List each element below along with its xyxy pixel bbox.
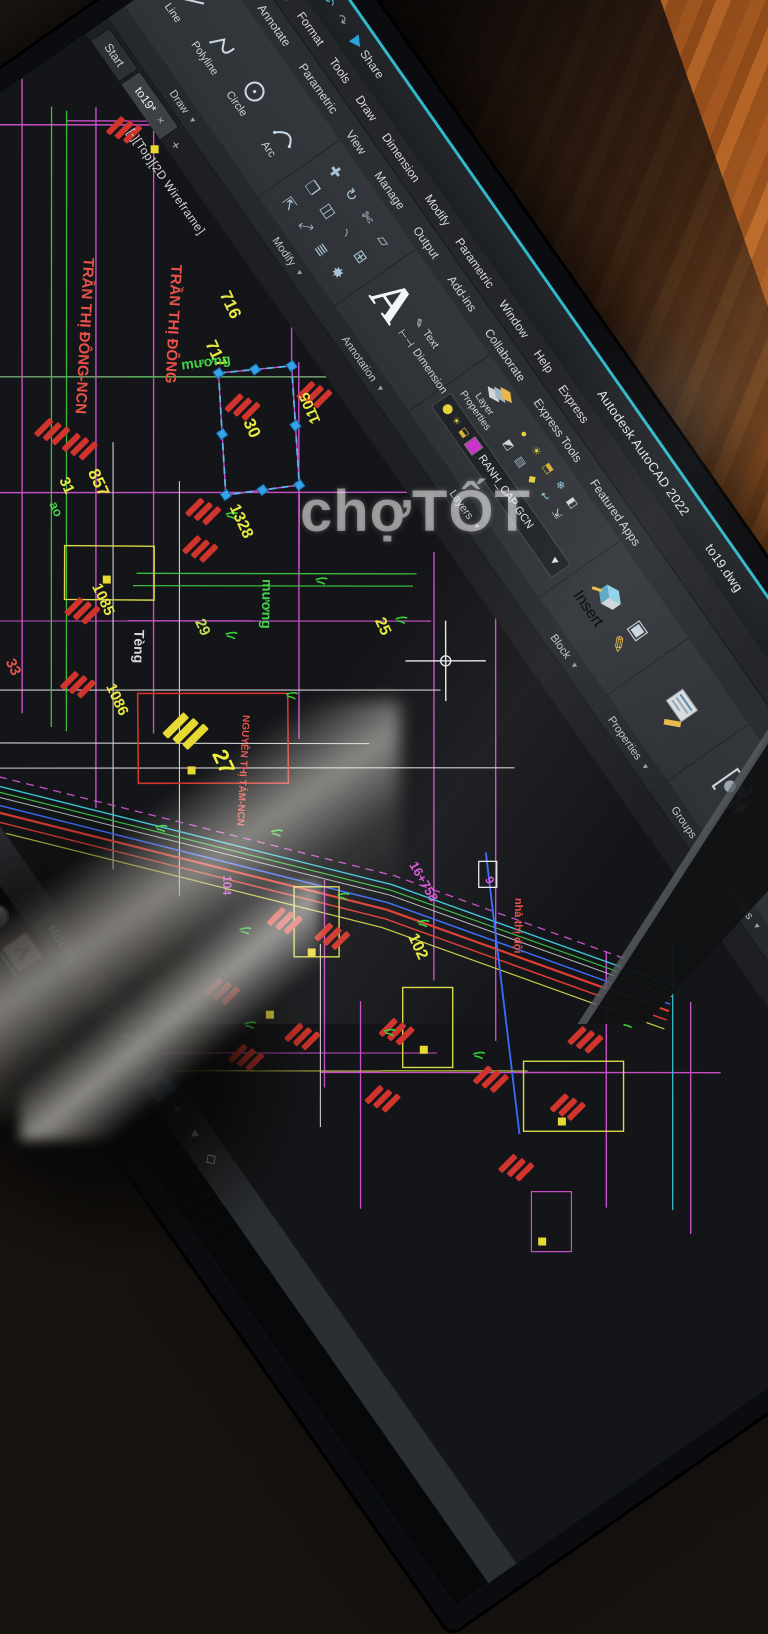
share-label: Share xyxy=(357,47,387,81)
chevron-down-icon: ▼ xyxy=(546,553,562,569)
tree-symbol xyxy=(396,613,409,626)
map-label: 33 xyxy=(2,656,24,678)
building-hatch xyxy=(378,1013,415,1050)
parcel-marker xyxy=(266,1011,274,1019)
redo-icon[interactable]: ↷ xyxy=(331,10,351,30)
tool-circle[interactable]: Circle xyxy=(218,65,278,126)
text-icon: ✎ xyxy=(411,316,427,331)
building-hatch xyxy=(60,666,97,703)
building-hatch xyxy=(182,531,219,568)
building-hatch xyxy=(314,918,351,955)
parcel-marker xyxy=(538,1238,546,1246)
map-label: 29 xyxy=(191,616,213,638)
edit-attributes-icon[interactable]: ✎ xyxy=(605,632,631,657)
map-label: 102 xyxy=(404,931,431,962)
parcel-marker xyxy=(420,1046,428,1054)
map-label: ao xyxy=(46,499,66,519)
properties-icon xyxy=(650,682,706,738)
map-label: 25 xyxy=(371,615,394,638)
map-label: TRẦN THỊ ĐÔNG-NCN xyxy=(72,257,98,414)
map-label: 1105 xyxy=(296,390,324,427)
layer-sun2-icon: ☀ xyxy=(449,414,463,428)
map-label: 1328 xyxy=(226,502,256,542)
tree-symbol xyxy=(240,924,253,937)
building-hatch xyxy=(266,902,303,939)
parcel-marker xyxy=(188,766,196,774)
building-hatch xyxy=(364,1080,401,1117)
share-icon xyxy=(349,34,365,50)
layer-on-icon xyxy=(441,402,455,416)
taskbar-emblem-icon[interactable] xyxy=(0,900,14,933)
map-label: 1086 xyxy=(102,681,132,718)
map-label: mương xyxy=(180,351,231,373)
map-label: Tèng xyxy=(131,630,148,664)
parcel-marker xyxy=(308,948,316,956)
layer-color-swatch xyxy=(464,437,483,456)
map-label: 30 xyxy=(239,416,264,441)
building-hatch xyxy=(567,1021,604,1058)
tree-symbol xyxy=(473,1048,486,1061)
menu-item-help[interactable]: Help xyxy=(531,347,557,375)
undo-icon[interactable]: ↶ xyxy=(319,0,339,12)
building-hatch xyxy=(473,1061,510,1098)
building-hatch xyxy=(162,708,209,755)
map-label: 716 xyxy=(216,288,245,322)
map-label: mương xyxy=(259,579,276,629)
tree-symbol xyxy=(316,574,329,587)
building-hatch xyxy=(549,1089,586,1126)
tool-polyline[interactable]: Polyline xyxy=(187,20,247,81)
create-block-icon[interactable]: ▣ xyxy=(624,617,651,644)
groups-icon xyxy=(709,765,765,823)
map-label: 104 xyxy=(220,875,234,896)
building-hatch xyxy=(185,493,222,530)
tool-arc[interactable]: Arc xyxy=(250,111,310,172)
map-label: nhà thị đội xyxy=(511,898,524,954)
building-hatch xyxy=(498,1149,535,1186)
parcel-marker xyxy=(558,1118,566,1126)
close-tab-icon[interactable]: × xyxy=(153,114,167,126)
map-label: 31 xyxy=(55,474,77,496)
map-label: NGUYỄN THỊ TÁM-NCN xyxy=(234,715,253,827)
dimension-icon: ⊢⊣ xyxy=(396,327,418,350)
tree-symbol xyxy=(226,629,239,642)
layer-unlock-icon: ⬓ xyxy=(457,426,471,440)
tree-symbol xyxy=(271,826,284,839)
building-hatch xyxy=(204,973,241,1010)
map-label: 27 xyxy=(207,745,240,778)
map-label: 857 xyxy=(84,466,113,500)
tree-symbol xyxy=(245,1018,258,1031)
